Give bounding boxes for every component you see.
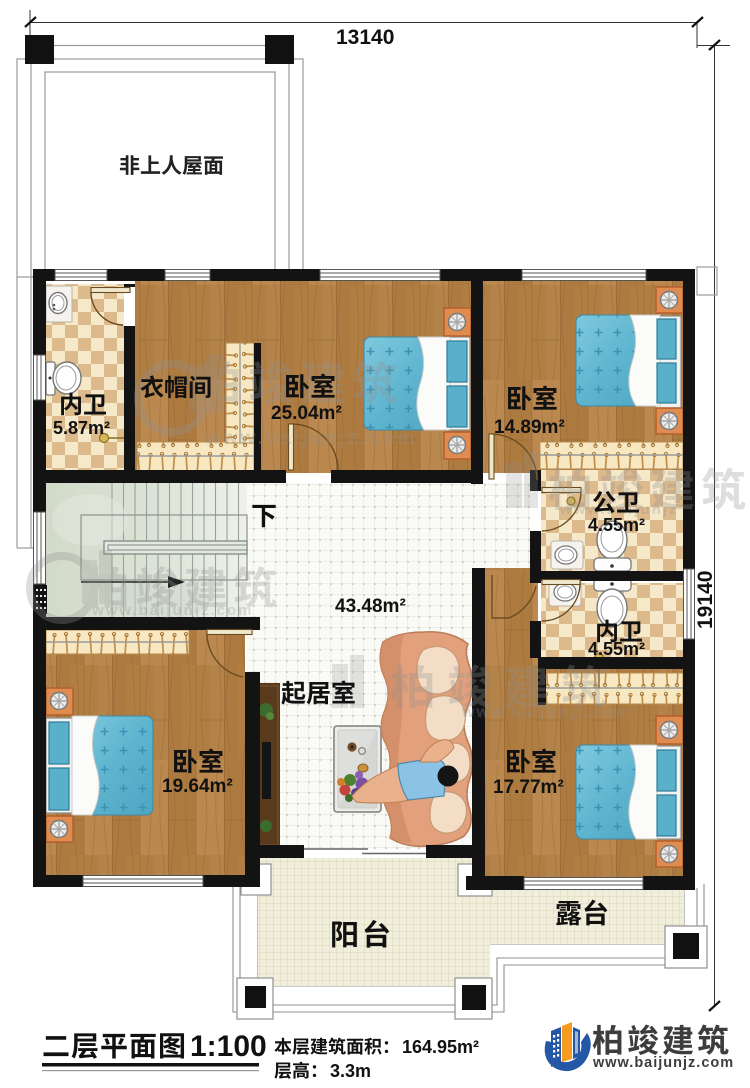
svg-text:17.77m²: 17.77m² [493, 777, 564, 798]
svg-text:4.55m²: 4.55m² [588, 515, 645, 535]
svg-text:25.04m²: 25.04m² [271, 403, 342, 424]
svg-text:1:100: 1:100 [190, 1030, 267, 1063]
svg-text:43.48m²: 43.48m² [335, 596, 406, 617]
svg-text:13140: 13140 [336, 26, 394, 49]
svg-text:14.89m²: 14.89m² [494, 417, 565, 438]
svg-text:3.3m: 3.3m [330, 1061, 371, 1081]
svg-text:www.baijunjz.com: www.baijunjz.com [204, 428, 417, 449]
svg-text:www.baijunjz.com: www.baijunjz.com [592, 1055, 734, 1071]
svg-text:19.64m²: 19.64m² [162, 776, 233, 797]
svg-text:4.55m²: 4.55m² [588, 639, 645, 659]
svg-text:5.87m²: 5.87m² [53, 418, 110, 438]
svg-text:19140: 19140 [694, 571, 717, 629]
svg-text:www.baijunjz.com: www.baijunjz.com [461, 704, 632, 721]
svg-text:164.95m²: 164.95m² [402, 1037, 479, 1057]
svg-text:www.baijunjz.com: www.baijunjz.com [91, 602, 253, 619]
